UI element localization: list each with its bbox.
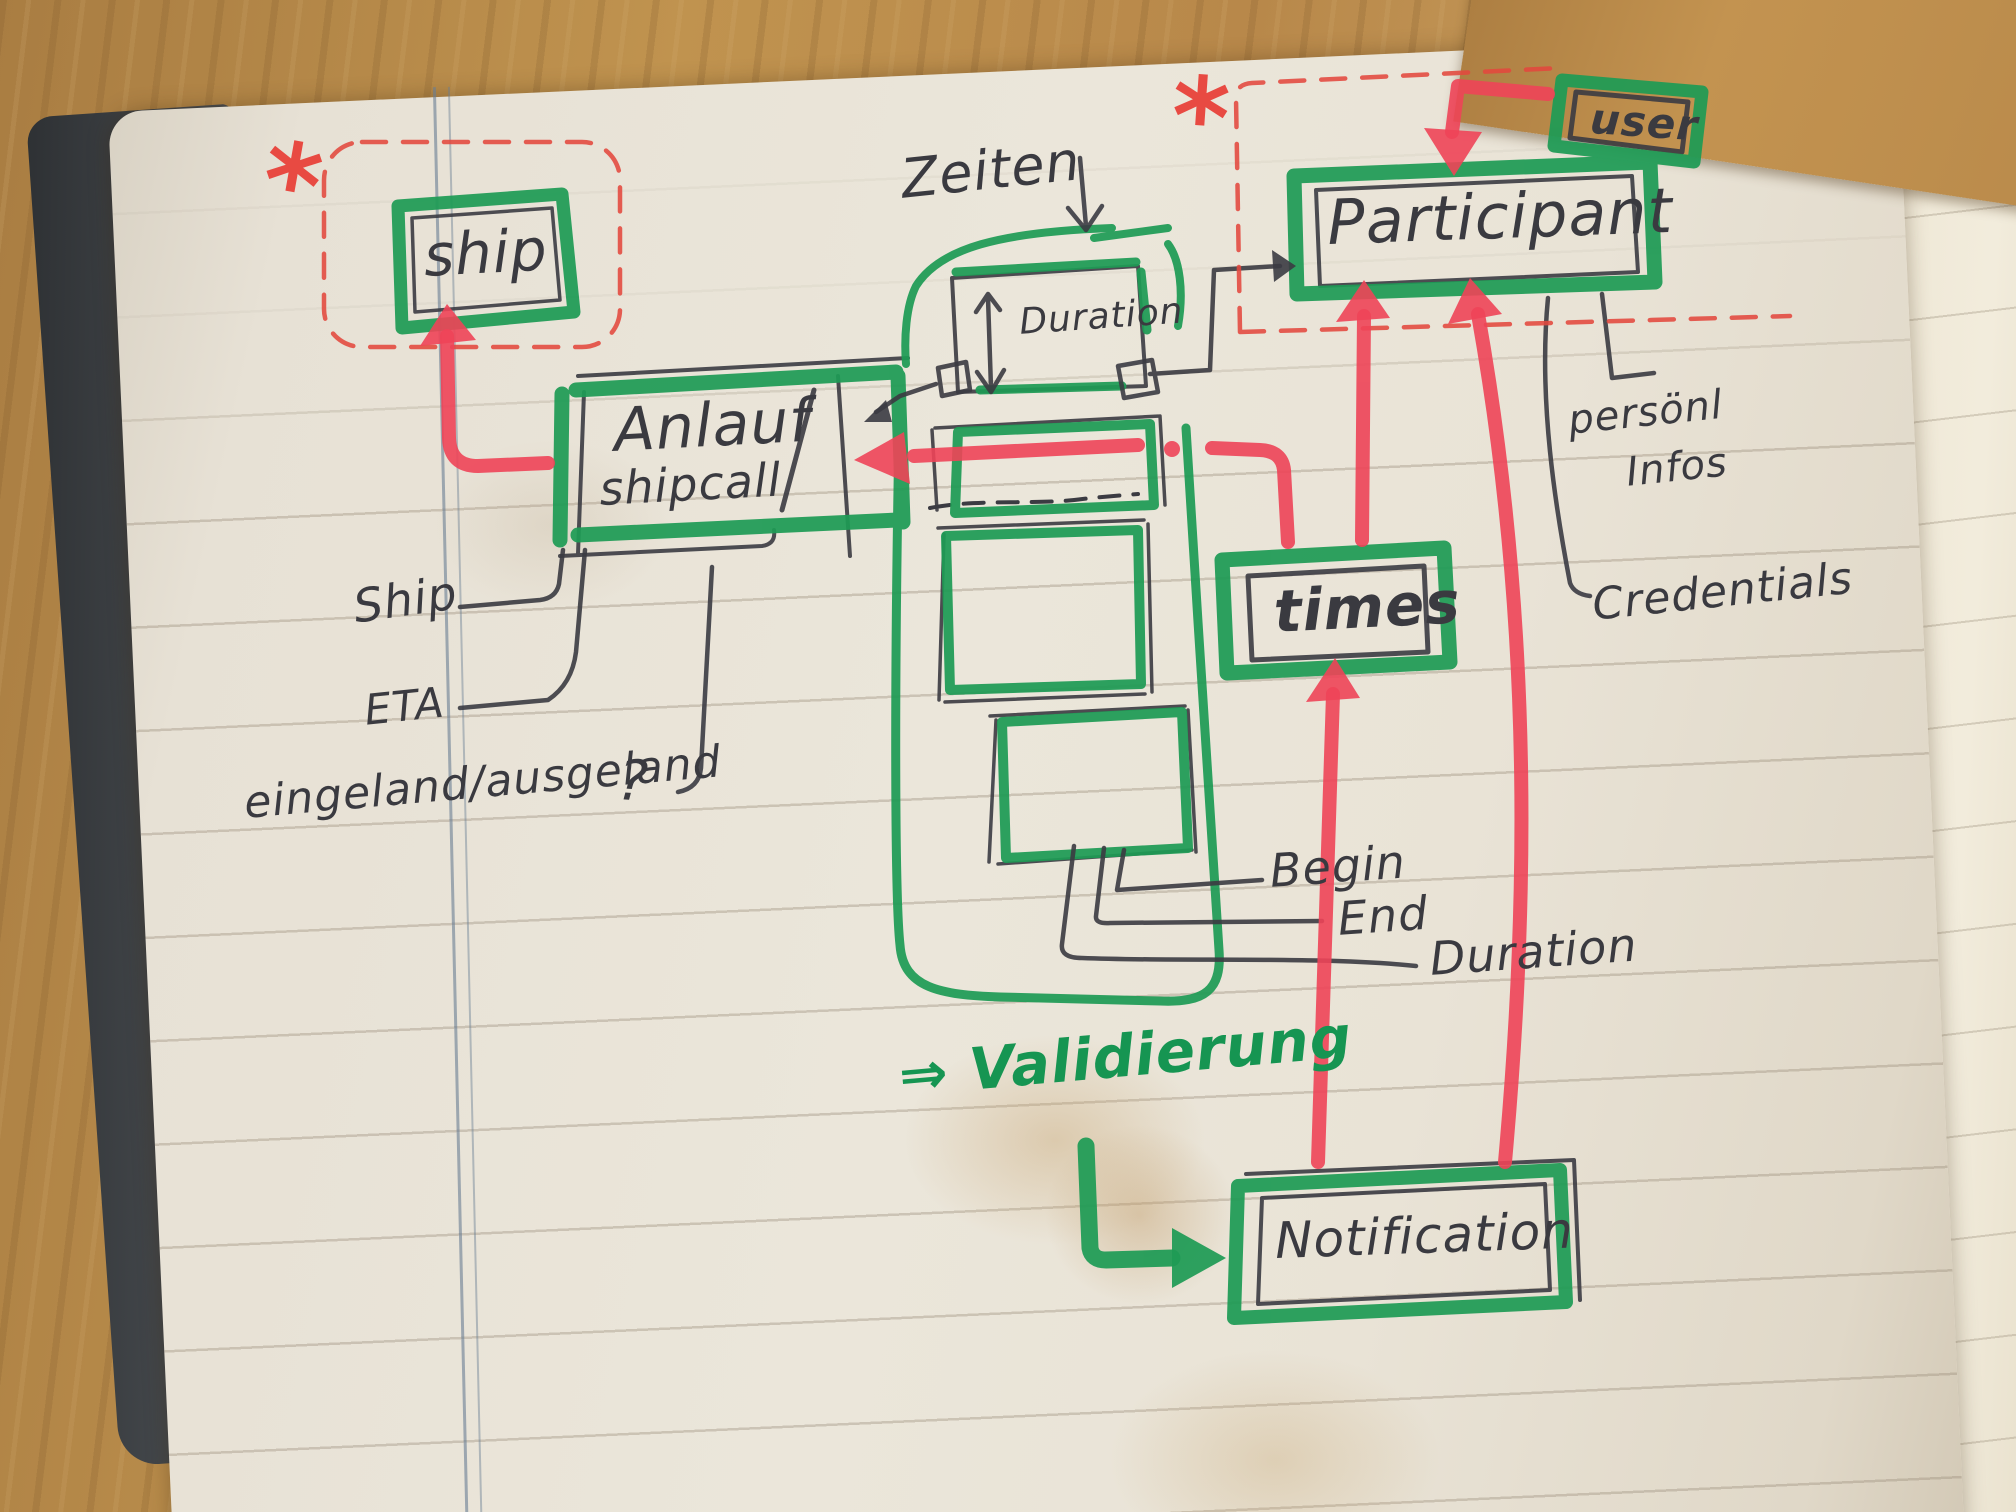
ship-attr-line <box>460 550 563 607</box>
times-to-participant-arrow <box>1362 316 1364 540</box>
duration-anchor-square-right <box>1118 360 1158 398</box>
notification-to-times-arrow <box>1318 694 1333 1162</box>
shipcall-box-label-line2: shipcall <box>598 452 783 515</box>
duration-anchor-square-left <box>938 362 970 396</box>
participant-box-label: Participant <box>1326 174 1674 259</box>
empty-box-3-marker <box>1002 712 1188 858</box>
notification-box-label: Notification <box>1274 1202 1575 1270</box>
shipcall-box-label-line1: Anlauf <box>612 386 813 466</box>
shipcall-to-ship-arrow <box>447 336 548 466</box>
notebook-photo-scene: Zeiten Duration Participant user ship An… <box>0 0 2016 1512</box>
notification-elbow-arrowhead <box>1172 1228 1226 1288</box>
personal-info-line <box>1602 294 1654 378</box>
user-to-participant-arrow <box>1452 86 1548 132</box>
notification-to-participant-arrow <box>1478 314 1521 1162</box>
times-box-label: times <box>1272 568 1462 646</box>
user-box-label: user <box>1589 94 1700 150</box>
empty-box-3-outline <box>989 706 1196 864</box>
notification-elbow-arrow <box>1086 1146 1172 1260</box>
eta-attr-line <box>460 550 585 708</box>
empty-box-1-marker <box>955 424 1154 513</box>
credentials-line <box>1545 298 1590 596</box>
ship-box-label: ship <box>422 216 549 290</box>
eta-attribute-label: ETA <box>362 678 447 735</box>
end-attribute-label: End <box>1336 886 1430 946</box>
times-to-shipcall-arrow-upper <box>1212 448 1288 542</box>
double-arrow-icon: ⇒ <box>896 1038 951 1110</box>
participant-region-asterisk: * <box>1167 52 1234 184</box>
times-to-shipcall-arrow-lower <box>914 445 1138 456</box>
times-to-shipcall-arrowhead <box>854 432 910 484</box>
empty-box-2-marker <box>946 530 1141 690</box>
inout-question-mark: ? <box>615 748 650 815</box>
red-ink-dot <box>1164 441 1180 457</box>
begin-attr-line <box>1117 850 1262 890</box>
duration-updown-arrow <box>976 294 1004 392</box>
empty-box-2-outline <box>938 520 1152 702</box>
